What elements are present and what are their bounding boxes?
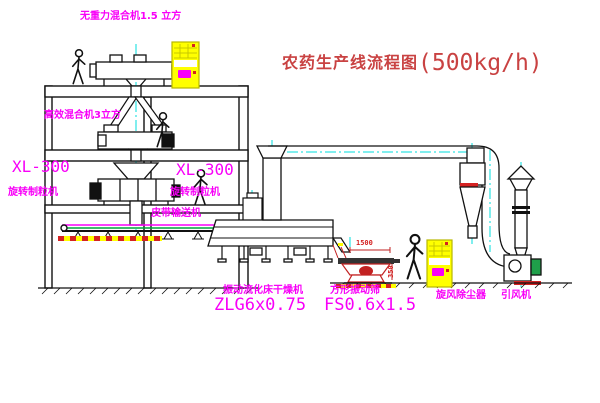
title-capacity: (500kg/h)	[418, 50, 543, 76]
control-cabinet-right	[427, 240, 452, 287]
cyclone-separator	[460, 148, 485, 238]
label-sieve-model: FS0.6x1.5	[324, 297, 416, 314]
dimension-sieve-outlet: 350	[388, 265, 395, 278]
label-fan: 引风机	[501, 291, 531, 301]
flow-diagram-canvas: 农药生产线流程图(500kg/h) 无重力混合机1.5 立方 高效混合机3立方 …	[0, 0, 600, 403]
label-granulator-right-name: 旋转制粒机	[170, 188, 220, 198]
label-dryer-model: ZLG6x0.75	[214, 297, 306, 314]
exhaust-stack	[508, 166, 534, 258]
diagram-title: 农药生产线流程图(500kg/h)	[282, 49, 543, 76]
label-granulator-left-model: XL-300	[12, 159, 70, 175]
person-figure-top-floor	[73, 50, 85, 84]
label-belt-conveyor: 皮带输送机	[151, 209, 201, 219]
dimension-sieve-length: 1500	[356, 240, 373, 247]
label-granulator-right-model: XL-300	[176, 162, 234, 178]
control-cabinet-top	[172, 42, 199, 88]
label-zero-gravity-mixer: 无重力混合机1.5 立方	[80, 12, 181, 22]
title-chinese: 农药生产线流程图	[282, 53, 418, 72]
induced-draft-fan	[504, 255, 541, 285]
fluid-bed-dryer	[208, 220, 333, 262]
label-cyclone: 旋风除尘器	[436, 291, 486, 301]
label-granulator-left-name: 旋转制粒机	[8, 188, 58, 198]
label-high-efficiency-mixer: 高效混合机3立方	[44, 111, 121, 121]
person-figure-ground	[407, 235, 423, 279]
